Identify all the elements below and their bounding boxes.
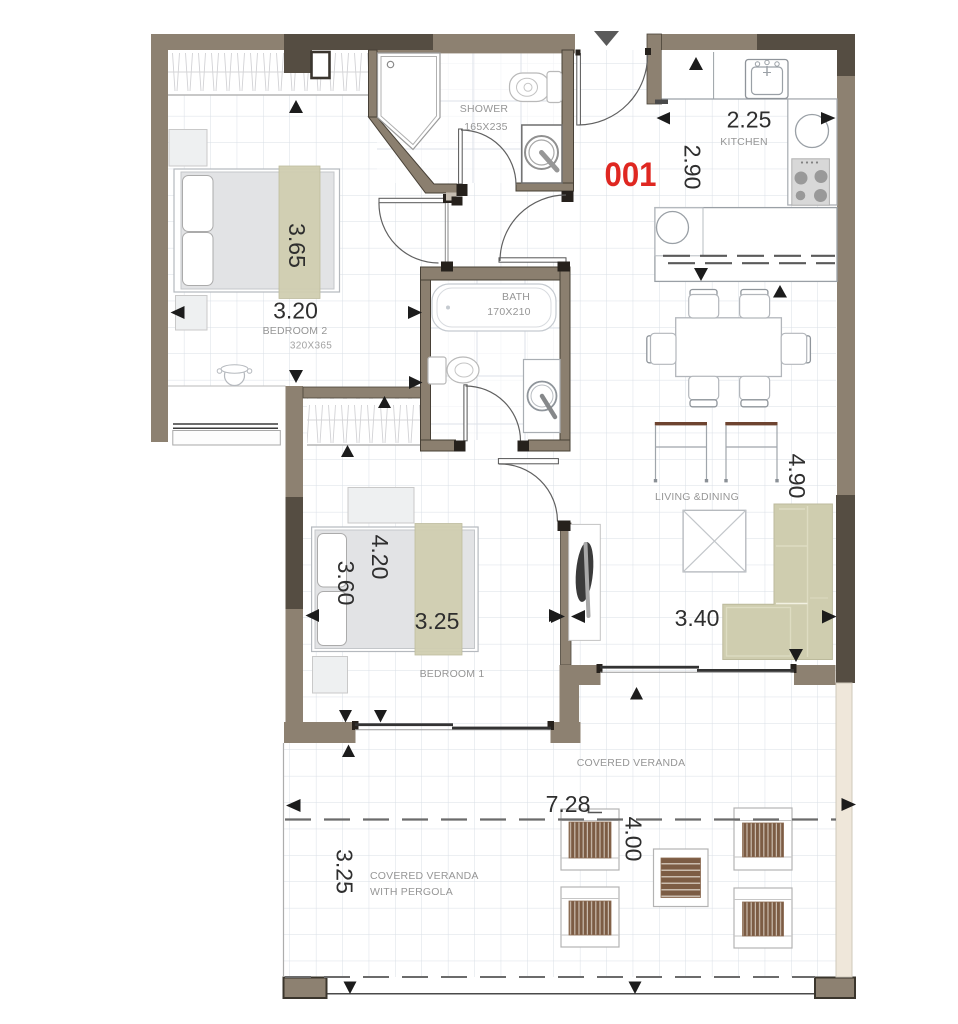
svg-text:3.25: 3.25 bbox=[415, 608, 460, 634]
svg-text:SHOWER: SHOWER bbox=[460, 103, 509, 115]
svg-text:3.20: 3.20 bbox=[273, 298, 318, 324]
svg-text:3.40: 3.40 bbox=[675, 605, 720, 631]
svg-text:7.28: 7.28 bbox=[546, 791, 591, 817]
svg-text:KITCHEN: KITCHEN bbox=[720, 136, 768, 148]
svg-text:LIVING &DINING: LIVING &DINING bbox=[655, 491, 739, 503]
svg-text:COVERED VERANDA: COVERED VERANDA bbox=[577, 757, 686, 769]
svg-text:165X235: 165X235 bbox=[464, 121, 507, 133]
svg-text:BATH: BATH bbox=[502, 291, 530, 303]
svg-text:3.65: 3.65 bbox=[284, 223, 310, 268]
svg-text:4.90: 4.90 bbox=[784, 454, 810, 499]
svg-text:4.20: 4.20 bbox=[367, 535, 393, 580]
svg-text:170X210: 170X210 bbox=[487, 306, 530, 318]
svg-text:3.25: 3.25 bbox=[332, 849, 358, 894]
svg-text:BEDROOM 1: BEDROOM 1 bbox=[420, 668, 485, 680]
svg-text:BEDROOM 2: BEDROOM 2 bbox=[263, 325, 328, 337]
svg-text:COVERED VERANDA: COVERED VERANDA bbox=[370, 870, 479, 882]
svg-text:2.25: 2.25 bbox=[727, 107, 772, 133]
svg-text:WITH PERGOLA: WITH PERGOLA bbox=[370, 886, 453, 898]
svg-text:320X365: 320X365 bbox=[290, 341, 332, 352]
svg-text:4.00: 4.00 bbox=[621, 817, 647, 862]
svg-text:3.60: 3.60 bbox=[333, 561, 359, 606]
svg-text:2.90: 2.90 bbox=[680, 145, 706, 190]
svg-text:001: 001 bbox=[605, 156, 657, 194]
